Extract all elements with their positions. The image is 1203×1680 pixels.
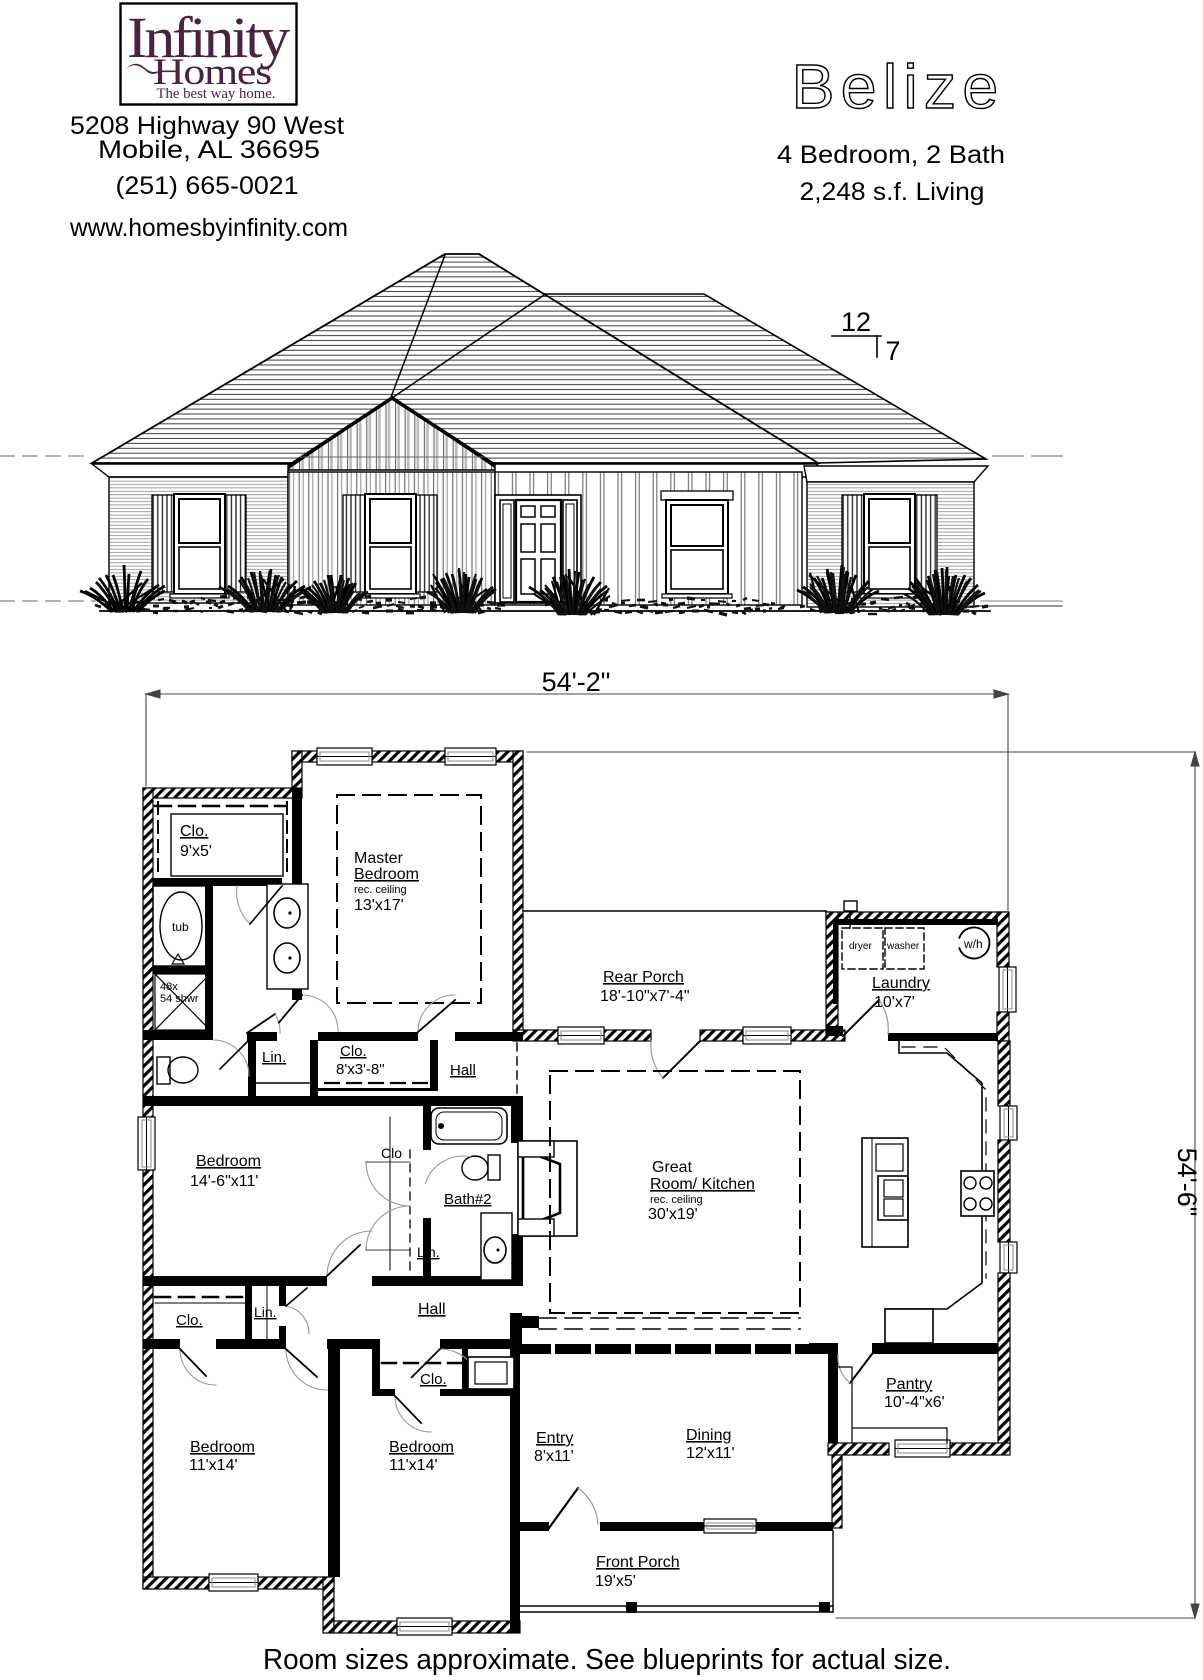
svg-text:2,248 s.f. Living: 2,248 s.f. Living [800,178,985,206]
svg-text:10'-4"x6': 10'-4"x6' [884,1394,945,1411]
svg-text:Belize: Belize [792,53,1005,122]
svg-text:Bedroom: Bedroom [196,1153,261,1170]
svg-text:14'-6"x11': 14'-6"x11' [190,1173,258,1190]
svg-text:18'-10"x7'-4": 18'-10"x7'-4" [600,988,690,1005]
svg-text:rec. ceiling: rec. ceiling [650,1194,703,1206]
svg-text:Bedroom: Bedroom [389,1439,454,1456]
svg-text:Great: Great [652,1159,693,1176]
svg-text:54'-2": 54'-2" [542,667,611,697]
svg-text:4 Bedroom, 2 Bath: 4 Bedroom, 2 Bath [777,141,1005,169]
svg-text:washer: washer [886,941,920,952]
svg-text:Lin.: Lin. [254,1304,277,1320]
svg-text:Clo: Clo [381,1145,402,1161]
svg-text:Master: Master [354,850,404,867]
svg-text:Room sizes approximate. See b: Room sizes approximate. See blueprints f… [263,1644,951,1676]
svg-text:Clo.: Clo. [420,1371,447,1388]
svg-text:www.homesbyinfinity.com: www.homesbyinfinity.com [69,214,348,242]
svg-text:Front Porch: Front Porch [596,1554,680,1571]
svg-text:Entry: Entry [536,1430,573,1447]
svg-text:Hall: Hall [450,1062,476,1079]
svg-text:dryer: dryer [849,941,872,952]
svg-text:48x: 48x [160,981,178,993]
svg-text:Room/ Kitchen: Room/ Kitchen [650,1176,755,1193]
svg-text:12: 12 [841,307,871,337]
svg-text:10'x7': 10'x7' [874,994,915,1011]
svg-text:8'x11': 8'x11' [534,1448,574,1465]
svg-text:Lin.: Lin. [262,1049,286,1066]
svg-text:13'x17': 13'x17' [354,897,404,914]
svg-text:9'x5': 9'x5' [180,843,212,860]
svg-text:Laundry: Laundry [872,975,930,992]
svg-text:Bedroom: Bedroom [190,1439,255,1456]
svg-text:19'x5': 19'x5' [595,1573,636,1590]
svg-text:Lin.: Lin. [417,1244,440,1260]
svg-text:Clo.: Clo. [176,1312,203,1329]
svg-text:Rear Porch: Rear Porch [603,969,684,986]
svg-text:rec. ceiling: rec. ceiling [354,884,407,896]
svg-text:11'x14': 11'x14' [189,1457,238,1474]
svg-text:(251) 665-0021: (251) 665-0021 [116,172,299,200]
svg-text:30'x19': 30'x19' [648,1206,698,1223]
svg-text:Hall: Hall [418,1301,446,1318]
svg-text:Dining: Dining [686,1427,731,1444]
svg-text:Clo.: Clo. [340,1043,367,1060]
svg-text:Bedroom: Bedroom [354,866,419,883]
svg-text:The best way home.: The best way home. [157,86,276,102]
svg-text:7: 7 [885,336,900,366]
svg-text:Mobile, AL 36695: Mobile, AL 36695 [98,136,320,164]
svg-text:tub: tub [172,920,189,934]
svg-text:Bath#2: Bath#2 [444,1191,492,1208]
svg-text:54 shwr: 54 shwr [160,993,199,1005]
svg-text:w/h: w/h [963,937,983,951]
svg-text:Pantry: Pantry [886,1376,932,1393]
svg-text:Clo.: Clo. [180,823,208,840]
svg-text:54'-6": 54'-6" [1172,1148,1202,1217]
svg-text:11'x14': 11'x14' [389,1457,438,1474]
svg-text:8'x3'-8": 8'x3'-8" [336,1061,385,1078]
svg-text:12'x11': 12'x11' [686,1445,735,1462]
